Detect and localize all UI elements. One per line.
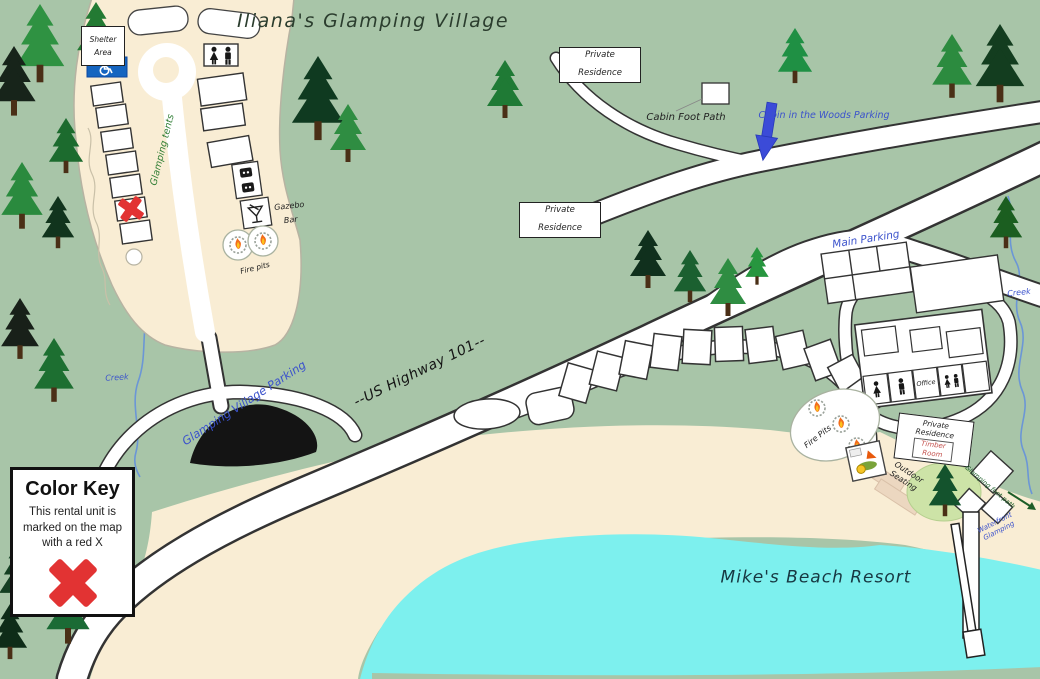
pine-tree-icon — [1, 298, 39, 359]
pine-tree-icon — [34, 338, 74, 402]
pine-tree-icon — [630, 230, 666, 288]
glamping-tent — [110, 174, 142, 198]
restroom-family-room — [937, 364, 964, 396]
glamping-tent — [96, 104, 128, 128]
campsite — [453, 397, 521, 432]
flame-icon — [255, 233, 271, 249]
gazebo-bar — [240, 197, 272, 229]
private-residence-label: Private Residence — [902, 416, 970, 442]
office-room — [913, 367, 940, 399]
color-key-description: This rental unit is marked on the map wi… — [18, 505, 128, 552]
pine-tree-icon — [487, 60, 523, 118]
red-x-icon — [40, 556, 106, 610]
glamping-village-map: Iliana's Glamping Village Shelter Area G… — [0, 0, 1040, 679]
building-room — [861, 326, 898, 356]
utility-station — [232, 161, 262, 198]
black-structure — [190, 404, 317, 466]
private-residence-box-south: Private Residence — [519, 202, 601, 238]
pine-tree-icon — [932, 34, 972, 98]
shelter-area-box: Shelter Area — [81, 26, 125, 66]
color-key-title: Color Key — [13, 478, 132, 501]
private-residence-box-north: Private Residence — [559, 47, 641, 83]
building-room — [910, 327, 942, 352]
glamping-tent — [106, 151, 138, 175]
building-room — [962, 361, 989, 393]
timber-room-box: Timber Room — [912, 437, 954, 462]
pine-tree-icon — [778, 28, 812, 83]
flame-icon — [230, 237, 246, 253]
office-building — [855, 309, 992, 408]
cabin — [702, 83, 729, 104]
campsite — [682, 329, 712, 364]
pine-tree-icon — [42, 196, 74, 248]
glamping-restroom — [204, 44, 238, 66]
beach-activity-sign — [846, 441, 886, 481]
campsite — [650, 333, 682, 370]
cabin-pointer-line — [676, 99, 702, 111]
building-room — [946, 328, 983, 358]
pine-tree-icon — [292, 56, 344, 140]
flame-icon — [809, 400, 825, 416]
glamping-tent — [91, 82, 123, 106]
private-residence-box-beach: Private Residence Timber Room — [893, 413, 974, 468]
pine-tree-icon — [1, 162, 42, 229]
glamping-tent — [101, 128, 133, 152]
pine-tree-icon — [990, 196, 1022, 248]
pine-tree-icon — [674, 250, 706, 302]
campsite — [714, 327, 743, 362]
glamping-tent — [120, 220, 152, 244]
map-canvas — [0, 0, 1040, 679]
glamping-tent — [197, 73, 246, 106]
color-key: Color Key This rental unit is marked on … — [10, 467, 135, 617]
campsite — [619, 341, 653, 380]
flame-icon — [833, 416, 849, 432]
pine-tree-icon — [976, 24, 1025, 102]
campsite — [745, 326, 777, 363]
